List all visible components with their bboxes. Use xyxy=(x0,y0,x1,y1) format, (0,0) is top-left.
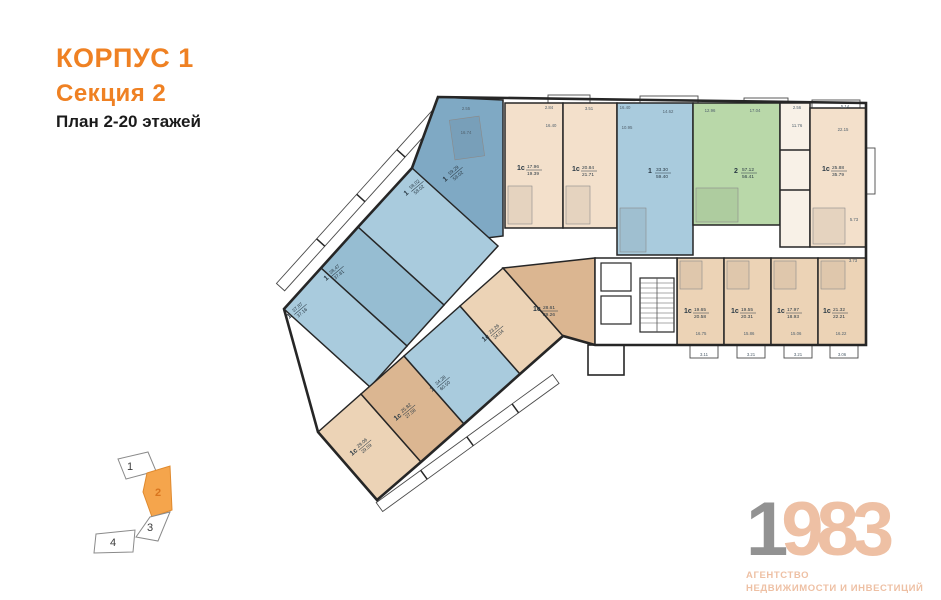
svg-text:59.40: 59.40 xyxy=(656,174,668,180)
svg-text:2.55: 2.55 xyxy=(462,106,471,111)
svg-text:17.97: 17.97 xyxy=(787,307,799,313)
svg-text:20.84: 20.84 xyxy=(582,165,594,171)
svg-text:3.06: 3.06 xyxy=(838,352,847,357)
svg-text:21.32: 21.32 xyxy=(833,307,845,313)
svg-text:19.55: 19.55 xyxy=(741,307,753,313)
section-3-number: 3 xyxy=(147,522,153,534)
svg-text:1: 1 xyxy=(648,168,652,175)
svg-text:5.14: 5.14 xyxy=(841,104,850,109)
svg-text:1с: 1с xyxy=(731,308,739,315)
svg-text:16.22: 16.22 xyxy=(836,331,847,336)
svg-text:28.61: 28.61 xyxy=(543,305,555,311)
svg-text:16.40: 16.40 xyxy=(546,123,557,128)
svg-text:22.21: 22.21 xyxy=(833,314,845,320)
svg-text:56.41: 56.41 xyxy=(742,174,754,180)
svg-text:1с: 1с xyxy=(684,308,692,315)
svg-text:2.84: 2.84 xyxy=(545,105,554,110)
entrance-lobby xyxy=(588,345,624,375)
svg-text:21.71: 21.71 xyxy=(582,172,594,178)
svg-text:3.11: 3.11 xyxy=(700,352,709,357)
svg-text:1с: 1с xyxy=(572,166,580,173)
elevator-2 xyxy=(601,296,631,324)
svg-text:15.06: 15.06 xyxy=(791,331,802,336)
svg-text:22.15: 22.15 xyxy=(838,127,849,132)
units-layer xyxy=(284,97,866,500)
svg-text:11.76: 11.76 xyxy=(792,123,803,128)
svg-text:57.12: 57.12 xyxy=(742,167,754,173)
section-key-map: 1 2 3 4 xyxy=(88,438,218,573)
section-1-number: 1 xyxy=(127,461,133,473)
elevator-1 xyxy=(601,263,631,291)
svg-text:1с: 1с xyxy=(823,308,831,315)
svg-text:3.21: 3.21 xyxy=(794,352,803,357)
svg-text:3.73: 3.73 xyxy=(849,258,858,263)
svg-text:1с: 1с xyxy=(517,165,525,172)
svg-text:33.30: 33.30 xyxy=(656,167,668,173)
svg-text:16.40: 16.40 xyxy=(620,105,631,110)
svg-text:25.88: 25.88 xyxy=(832,165,844,171)
svg-text:17.96: 17.96 xyxy=(527,164,539,170)
svg-text:15.86: 15.86 xyxy=(744,331,755,336)
floor-plan-page: КОРПУС 1 Секция 2 План 2-20 этажей xyxy=(0,0,941,600)
svg-text:2.56: 2.56 xyxy=(793,105,802,110)
svg-text:20.58: 20.58 xyxy=(694,314,706,320)
svg-text:17.04: 17.04 xyxy=(750,108,761,113)
svg-text:5.73: 5.73 xyxy=(850,217,859,222)
svg-text:20.31: 20.31 xyxy=(741,314,753,320)
section-2-number: 2 xyxy=(155,487,161,499)
svg-text:1с: 1с xyxy=(533,306,541,313)
svg-text:3.21: 3.21 xyxy=(747,352,756,357)
svg-text:29.26: 29.26 xyxy=(543,312,555,318)
svg-text:10.95: 10.95 xyxy=(622,125,633,130)
svg-text:16.74: 16.74 xyxy=(461,130,472,135)
svg-text:12.96: 12.96 xyxy=(705,108,716,113)
staircase xyxy=(640,278,674,332)
logo-subtitle: АГЕНТСТВО НЕДВИЖИМОСТИ И ИНВЕСТИЦИЙ xyxy=(746,570,941,596)
svg-text:1с: 1с xyxy=(777,308,785,315)
agency-logo: 1983 АГЕНТСТВО НЕДВИЖИМОСТИ И ИНВЕСТИЦИЙ xyxy=(746,492,941,596)
svg-text:35.79: 35.79 xyxy=(832,172,844,178)
section-4-number: 4 xyxy=(110,537,116,549)
svg-text:3.51: 3.51 xyxy=(585,106,594,111)
svg-text:19.39: 19.39 xyxy=(527,171,539,177)
svg-text:18.93: 18.93 xyxy=(787,314,799,320)
core-details xyxy=(588,263,674,375)
svg-text:2: 2 xyxy=(734,168,738,175)
svg-text:16.75: 16.75 xyxy=(696,331,707,336)
svg-text:14.62: 14.62 xyxy=(663,109,674,114)
logo-year: 1983 xyxy=(746,492,941,568)
svg-text:19.65: 19.65 xyxy=(694,307,706,313)
svg-text:1с: 1с xyxy=(822,166,830,173)
